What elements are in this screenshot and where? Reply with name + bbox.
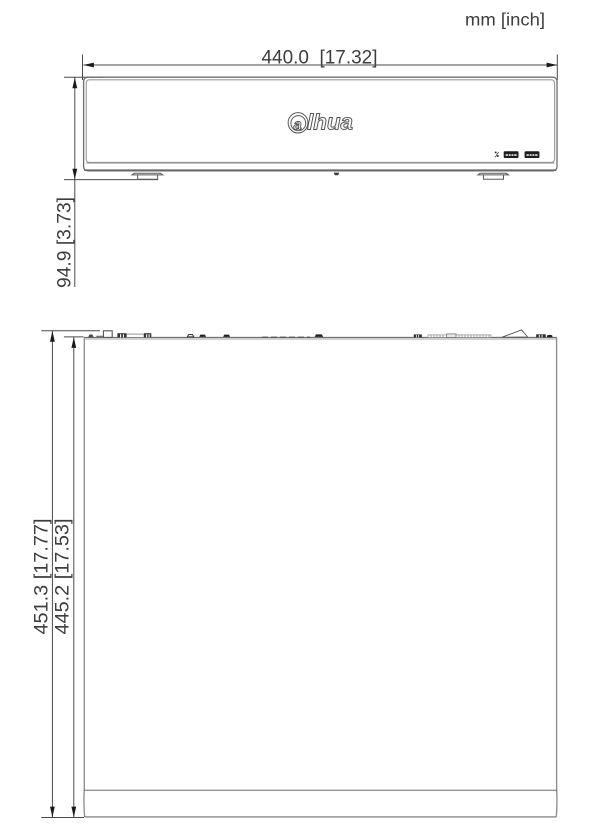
- svg-text:451.3 [17.77]: 451.3 [17.77]: [32, 519, 53, 635]
- svg-text:mm [inch]: mm [inch]: [465, 10, 545, 30]
- svg-text:a: a: [294, 117, 302, 133]
- svg-text:445.2 [17.53]: 445.2 [17.53]: [53, 519, 74, 635]
- svg-text:lhua: lhua: [307, 110, 353, 135]
- svg-text:94.9 [3.73]: 94.9 [3.73]: [55, 197, 76, 288]
